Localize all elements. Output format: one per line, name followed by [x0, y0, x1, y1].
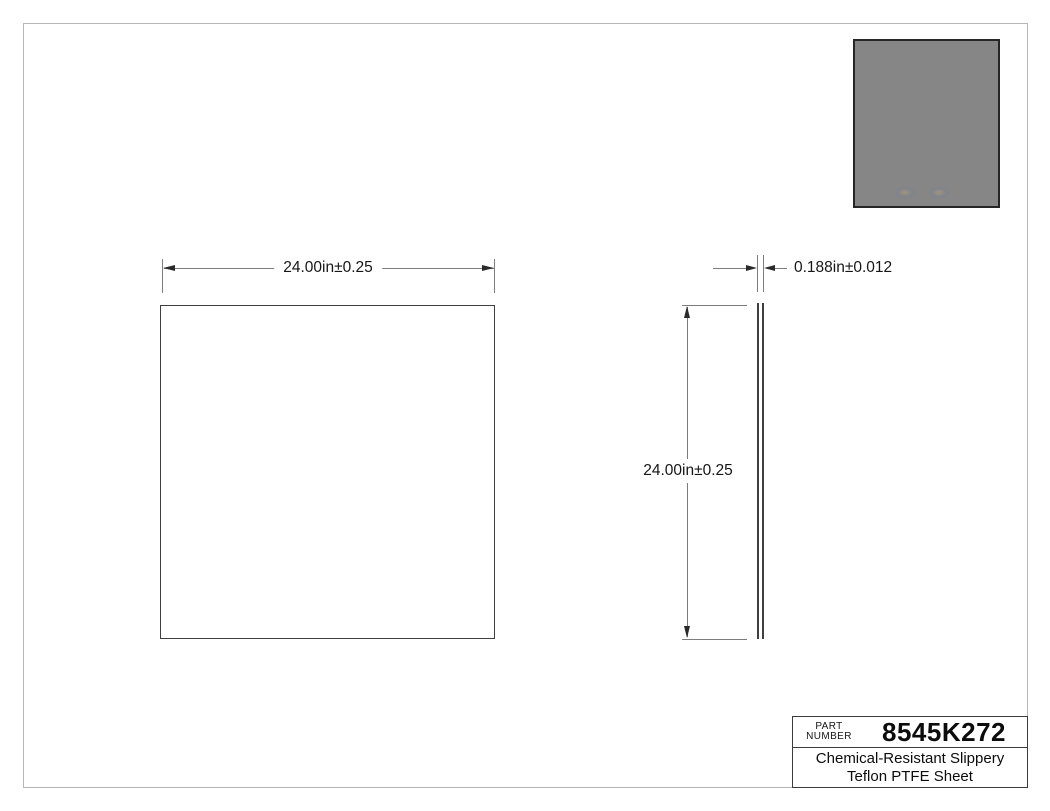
part-number-label: PART NUMBER: [793, 722, 865, 742]
front-width-dimension-label: 24.00in±0.25: [274, 258, 382, 278]
drawing-canvas: 24.00in±0.25 0.188in±0.012 24.00in±0.25 …: [0, 0, 1050, 811]
dimension-arrow-left: [163, 265, 175, 271]
dimension-arrow-right: [482, 265, 494, 271]
product-thumbnail: [853, 39, 1000, 208]
part-number-value: 8545K272: [865, 717, 1027, 748]
extension-line: [763, 255, 764, 292]
extension-line: [682, 305, 747, 306]
watermark-artifact: [895, 187, 915, 198]
title-block-part-row: PART NUMBER 8545K272: [793, 717, 1027, 748]
dimension-line: [713, 268, 747, 269]
extension-line: [757, 255, 758, 292]
side-height-dimension-label: 24.00in±0.25: [640, 459, 736, 483]
dimension-arrow-up: [684, 306, 690, 318]
title-block: PART NUMBER 8545K272 Chemical-Resistant …: [792, 716, 1028, 788]
dimension-line: [775, 268, 787, 269]
dimension-arrow-right-pointing: [746, 265, 757, 271]
dimension-arrow-down: [684, 626, 690, 638]
extension-line: [682, 639, 747, 640]
side-thickness-dimension-label: 0.188in±0.012: [794, 259, 892, 277]
part-number-label-line2: NUMBER: [793, 732, 865, 742]
front-view-outline: [160, 305, 495, 639]
extension-line: [494, 259, 495, 293]
dimension-arrow-left-pointing: [764, 265, 775, 271]
part-description-line1: Chemical-Resistant Slippery: [793, 750, 1027, 768]
part-description-line2: Teflon PTFE Sheet: [793, 768, 1027, 786]
side-view-sheet-edge: [757, 303, 764, 639]
title-block-description-row: Chemical-Resistant Slippery Teflon PTFE …: [793, 748, 1027, 787]
watermark-artifact: [929, 187, 949, 198]
